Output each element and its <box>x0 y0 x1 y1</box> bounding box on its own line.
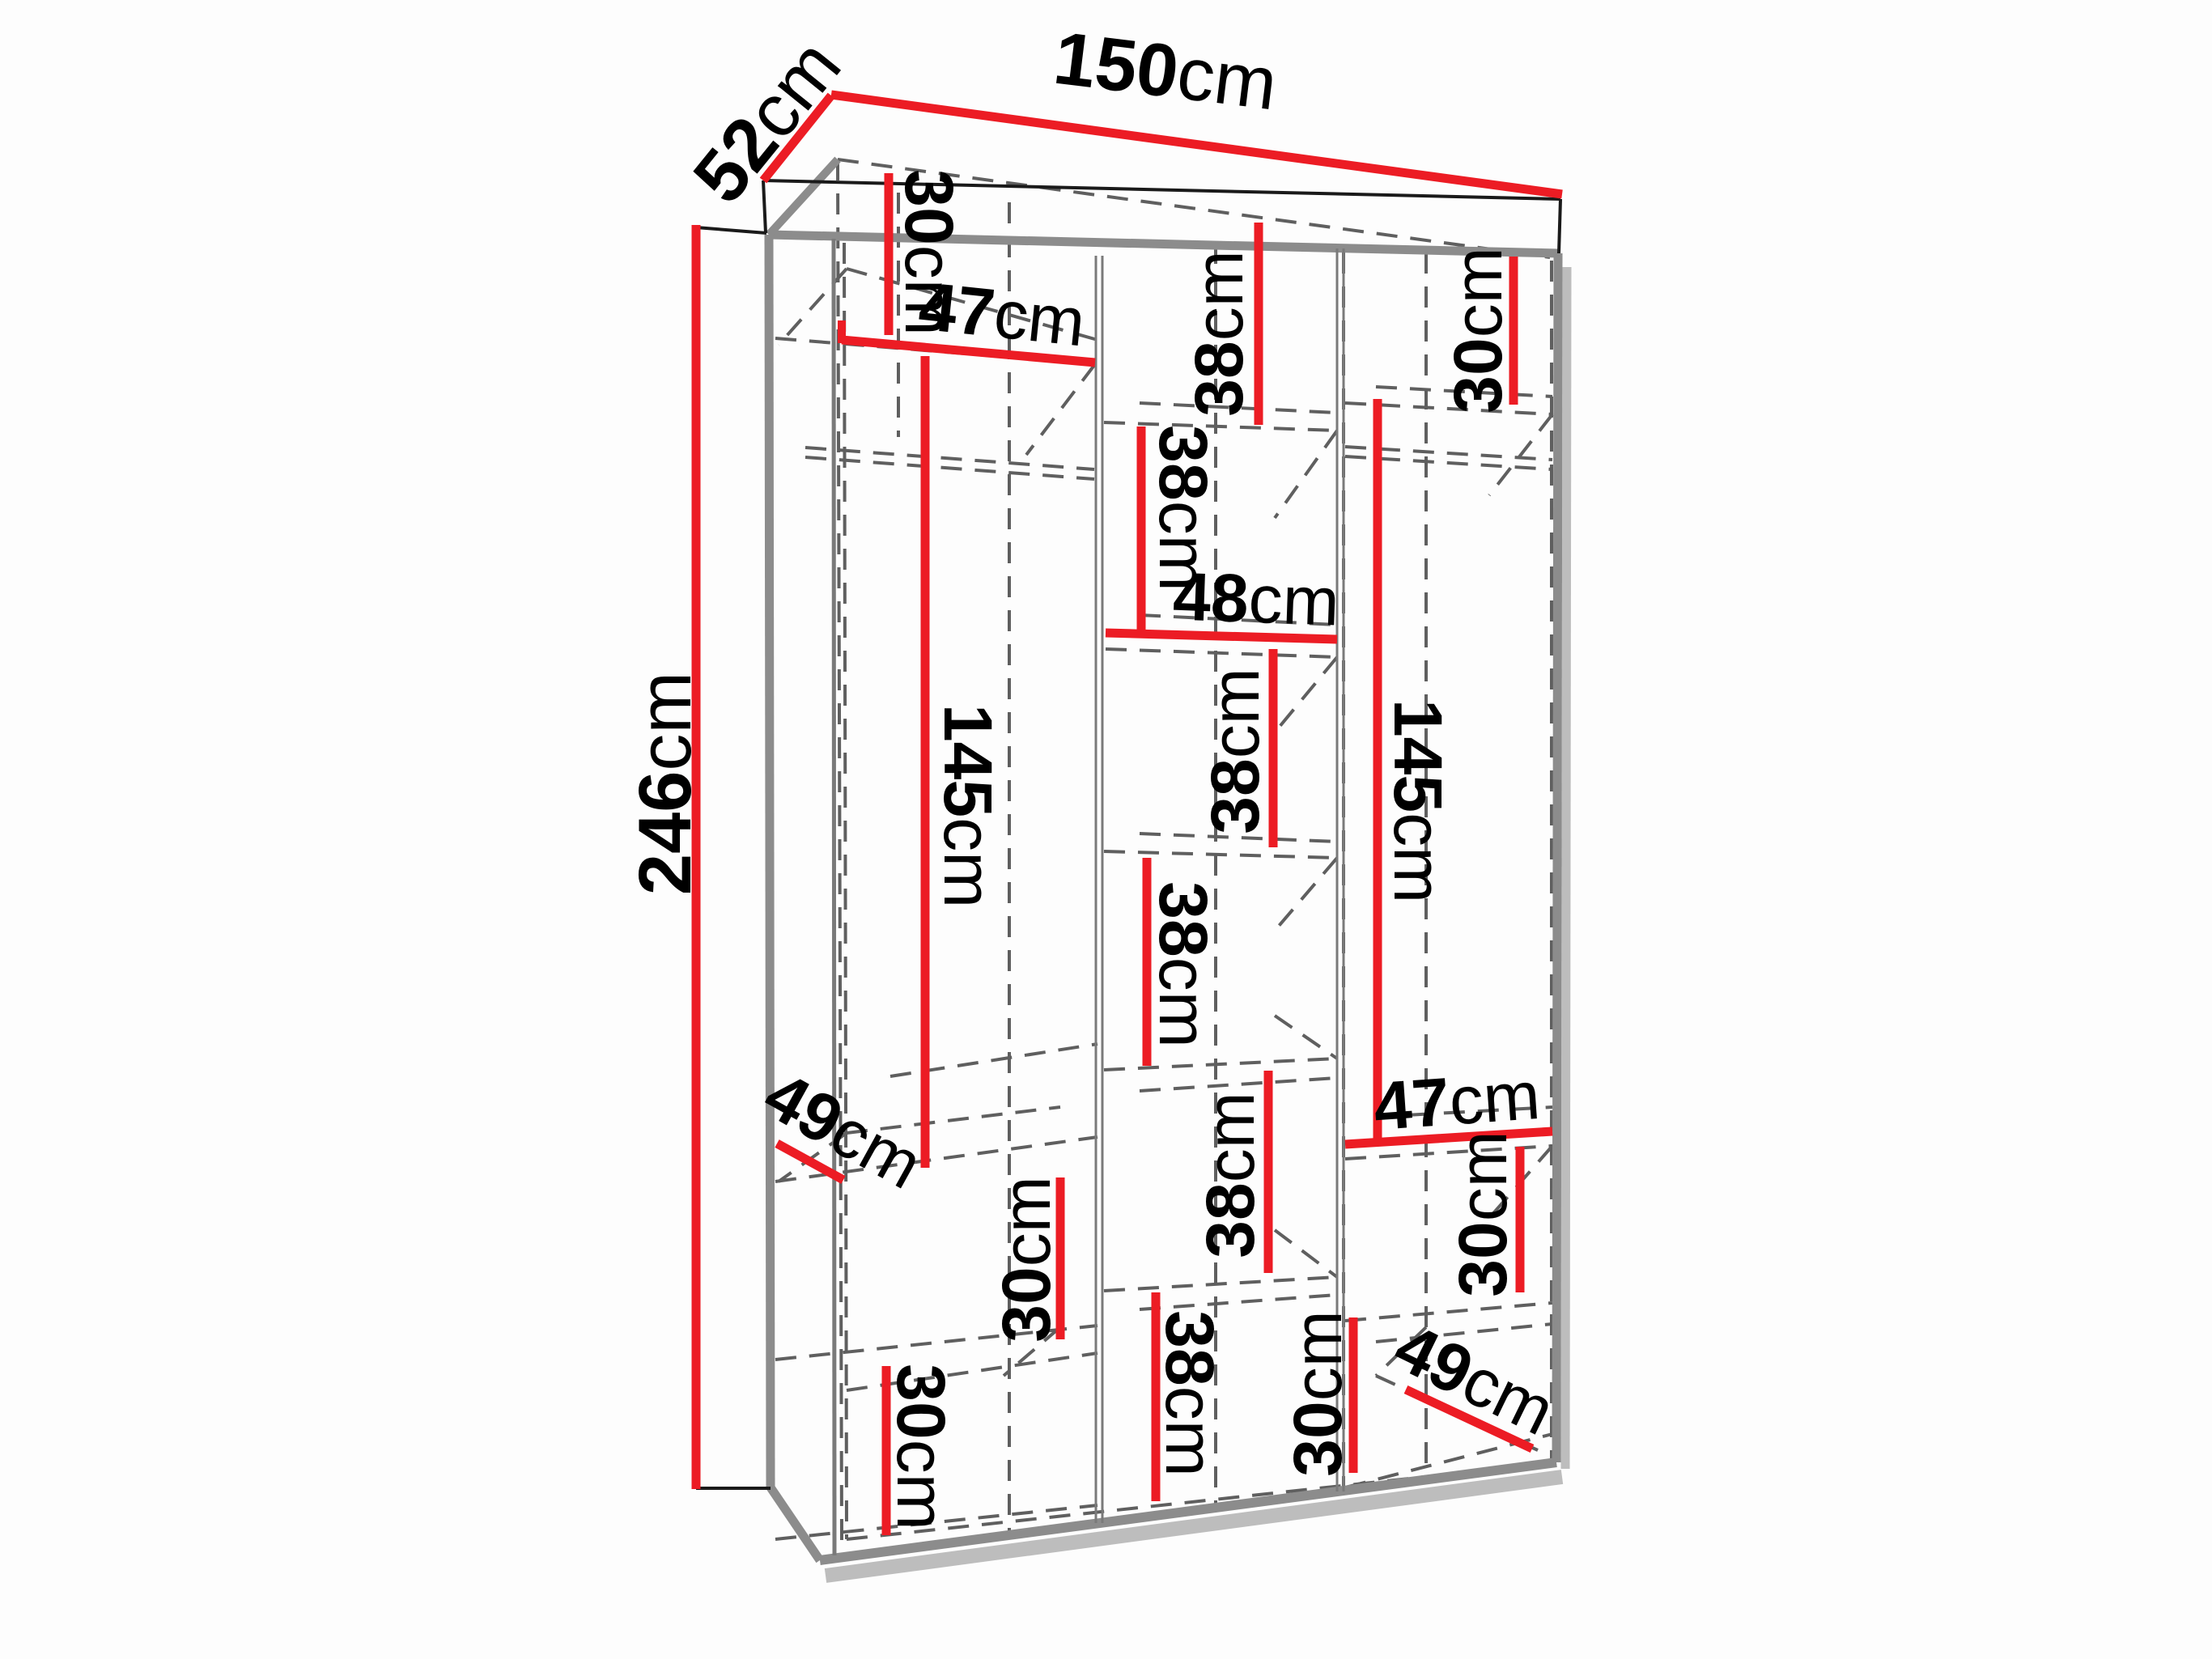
shadow-right <box>1565 267 1567 1469</box>
dim-mid-shelf-48-label: 48cm <box>1172 558 1341 639</box>
page: { "diagram": { "title": "wardrobe-dimens… <box>0 0 2212 1659</box>
dim-right-hang-145-label: 145cm <box>1380 699 1456 903</box>
dim-mid-38-c-label: 38cm <box>1197 668 1273 834</box>
dim-mid-38-a-label: 38cm <box>1181 250 1257 416</box>
top-panel-right-corner <box>1559 199 1560 253</box>
dim-mid-38-d-label: 38cm <box>1145 881 1221 1047</box>
dim-height-246-label: 246cm <box>624 672 707 895</box>
dim-mid-38-e-label: 38cm <box>1192 1092 1268 1258</box>
dim-mid-bottom-30-label: 30cm <box>1280 1310 1356 1476</box>
background <box>0 0 2212 1659</box>
wardrobe-dimension-diagram: 52cm150cm246cm30cm47cm145cm38cm38cm48cm3… <box>0 0 2212 1659</box>
dim-right-low-30-label: 30cm <box>1445 1131 1521 1296</box>
dim-mid-38-f-label: 38cm <box>1152 1310 1228 1476</box>
dim-left-mid-30-label: 30cm <box>988 1176 1064 1342</box>
dim-right-top-30-label: 30cm <box>1440 247 1516 413</box>
inner-left-edge <box>834 239 834 1555</box>
front-right-edge <box>1556 253 1558 1462</box>
front-left-edge <box>769 235 771 1487</box>
diagram-canvas: 52cm150cm246cm30cm47cm145cm38cm38cm48cm3… <box>0 0 2212 1659</box>
dim-left-hang-145-label: 145cm <box>930 704 1006 908</box>
dim-left-bottom-30-label: 30cm <box>883 1364 959 1530</box>
